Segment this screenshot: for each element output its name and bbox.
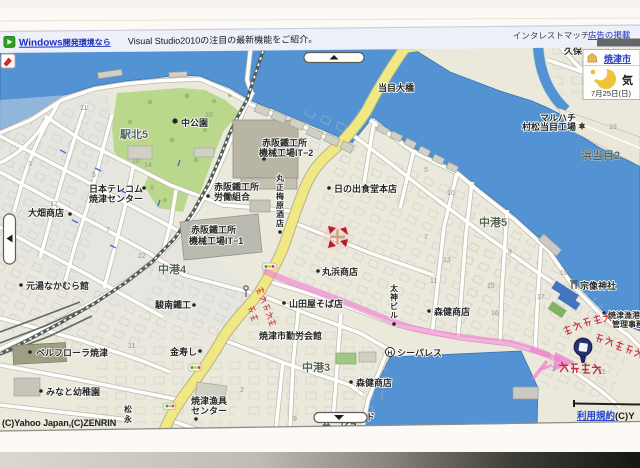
svg-text:Visual Studio2010の注目の最新機能をご紹介。: Visual Studio2010の注目の最新機能をご紹介。 <box>128 33 318 46</box>
svg-text:インタレストマッチ −: インタレストマッチ − <box>513 30 597 41</box>
svg-text:Windows開発環境なら: Windows開発環境なら <box>19 37 111 49</box>
